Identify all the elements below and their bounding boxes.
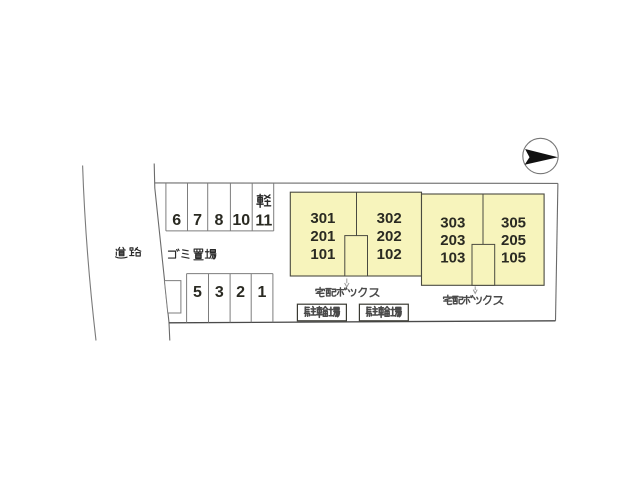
svg-text:6: 6 (172, 212, 181, 229)
svg-text:10: 10 (232, 212, 250, 229)
svg-text:203: 203 (440, 232, 465, 249)
svg-text:7: 7 (193, 212, 202, 229)
svg-text:5: 5 (193, 284, 202, 301)
svg-text:302: 302 (377, 210, 402, 227)
svg-text:103: 103 (440, 249, 465, 266)
svg-text:301: 301 (310, 210, 335, 227)
svg-text:202: 202 (377, 228, 402, 245)
svg-text:305: 305 (501, 215, 526, 232)
svg-text:205: 205 (501, 232, 526, 249)
svg-text:2: 2 (236, 284, 245, 301)
svg-text:201: 201 (310, 228, 335, 245)
svg-text:1: 1 (258, 284, 267, 301)
svg-text:105: 105 (501, 249, 526, 266)
svg-text:11: 11 (255, 213, 272, 230)
svg-text:101: 101 (310, 246, 335, 263)
svg-text:3: 3 (215, 284, 224, 301)
svg-text:8: 8 (215, 212, 224, 229)
svg-text:102: 102 (377, 246, 402, 263)
svg-text:303: 303 (440, 215, 465, 232)
